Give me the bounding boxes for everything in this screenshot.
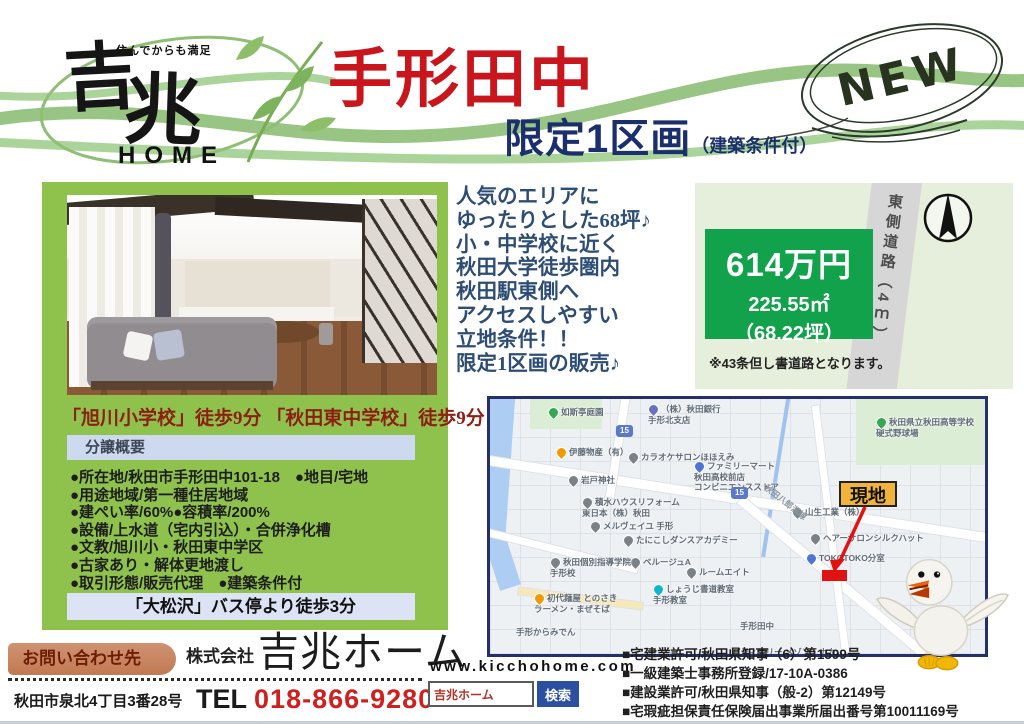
overview-item: ●建ぺい率/60%●容積率/200%	[70, 504, 440, 522]
map-pin-icon	[546, 405, 562, 421]
map-poi-text: 手形からみでん	[516, 627, 576, 637]
map-poi-text: ルームエイト	[699, 567, 750, 577]
price-box: 614万円 225.55㎡ （68.22坪）	[705, 229, 873, 339]
map-poi-text: 秋田県立秋田高等学校 硬式野球場	[876, 417, 974, 438]
map-poi-label: メルヴェイユ 手形	[590, 521, 673, 532]
map-poi-text: 如斯亭庭園	[561, 407, 604, 417]
photo-sofa-base-shape	[91, 381, 273, 390]
map-poi-text: 秋田個別指導学院 手形校	[550, 557, 631, 578]
map-pin-icon	[621, 533, 637, 549]
overview-list: ●所在地/秋田市手形田中101-18 ●地目/宅地●用途地域/第一種住居地域●建…	[70, 469, 440, 592]
logo-character-cho: 兆	[123, 71, 204, 152]
new-badge: NEW	[792, 6, 1012, 151]
map-pin-icon	[804, 551, 820, 567]
map-poi-label: 岩戸神社	[568, 475, 615, 486]
lead-line: アクセスしやすい	[456, 305, 704, 329]
tel-number: 018-866-9280	[254, 684, 434, 714]
lead-line: 小・中学校に近く	[456, 234, 704, 258]
company-prefix: 株式会社	[186, 642, 254, 673]
map-pin-icon	[626, 450, 642, 466]
company-name-row: 株式会社 吉兆ホーム	[186, 632, 467, 673]
map-poi-text: ベルージュA	[643, 557, 691, 567]
overview-item: ●用途地域/第一種住居地域	[70, 487, 440, 505]
map-poi-text: 初代麺屋 とのさき ラーメン・まぜそば	[534, 593, 617, 614]
photo-pillow-shape	[123, 331, 154, 362]
photo-pillow-shape	[153, 329, 185, 361]
map-poi-text: しょうじ書道教室 手形教室	[653, 584, 734, 605]
map-poi-text: たにこしダンスアカデミー	[636, 535, 738, 545]
map-road	[812, 406, 851, 654]
tel-label: TEL	[196, 684, 247, 714]
subtitle-main: 限定1区画	[504, 117, 691, 161]
flyer-page: 住んでからも満足 吉 兆 HOME 手形田中 限定1区画（建築条件付） NEW	[0, 0, 1024, 724]
map-poi-label: （株）秋田銀行 手形北支店	[648, 404, 721, 425]
map-pin-icon	[566, 473, 582, 489]
price-panel: 東側道路（4ｍ） 614万円 225.55㎡ （68.22坪） ※43条但し書道…	[695, 183, 1013, 389]
website-url: www.kicchohome.com	[430, 658, 636, 675]
photo-staircase-shape	[362, 199, 437, 363]
telephone-row: TEL 018-866-9280	[196, 684, 434, 715]
map-pin-icon	[684, 565, 700, 581]
kiccho-home-logo: 住んでからも満足 吉 兆 HOME	[58, 26, 258, 171]
duck-mascot	[872, 538, 1010, 676]
lead-line: ゆったりとした68坪♪	[456, 210, 704, 234]
map-poi-label: 如斯亭庭園	[548, 407, 604, 418]
map-poi-text: 手形田中	[740, 621, 774, 631]
bus-stop-line: 「大松沢」バス停より徒歩3分	[67, 593, 415, 620]
lead-line: 秋田大学徒歩圏内	[456, 257, 704, 281]
search-box: 検索	[428, 681, 579, 707]
subtitle: 限定1区画（建築条件付）	[504, 106, 817, 164]
photo-kitchen-shape	[185, 261, 330, 313]
lead-line: 立地条件！！	[456, 329, 704, 353]
site-marker-label: 現地	[839, 481, 897, 507]
map-poi-label: 手形からみでん	[516, 627, 576, 637]
compass-icon	[921, 191, 975, 245]
search-button[interactable]: 検索	[537, 681, 579, 707]
overview-item: ●設備/上水道（宅内引込）・合併浄化槽	[70, 522, 440, 540]
photo-chair-shape	[319, 323, 333, 345]
license-line: ■宅瑕疵担保責任保険届出事業所届出番号第10011169号	[622, 702, 959, 721]
interior-photo	[67, 195, 437, 395]
area-sqm: 225.55㎡	[705, 288, 873, 317]
map-poi-text: 伊藤物産（有）	[569, 447, 629, 457]
logo-home-text: HOME	[118, 142, 226, 170]
contact-badge: お問い合わせ先	[8, 643, 176, 675]
lead-line: 限定1区画の販売♪	[456, 353, 704, 377]
map-poi-text: 15	[620, 426, 629, 435]
search-input[interactable]	[428, 681, 534, 707]
map-poi-label: 秋田県立秋田高等学校 硬式野球場	[876, 417, 974, 438]
map-poi-label: 手形田中	[740, 621, 774, 631]
area-tsubo: （68.22坪）	[705, 317, 873, 346]
license-line: ■建設業許可/秋田県知事（般-2）第12149号	[622, 683, 959, 702]
overview-item: ●古家あり・解体更地渡し	[70, 557, 440, 575]
map-poi-label: たにこしダンスアカデミー	[623, 535, 738, 546]
map-pin-icon	[554, 445, 570, 461]
dotted-divider	[8, 678, 422, 681]
map-poi-label: ベルージュA	[630, 557, 691, 568]
map-pin-icon	[808, 531, 824, 547]
lead-line: 人気のエリアに	[456, 186, 704, 210]
price-amount: 614万円	[705, 238, 873, 286]
road-note: ※43条但し書道路となります。	[709, 353, 890, 372]
overview-item: ●所在地/秋田市手形田中101-18 ●地目/宅地	[70, 469, 440, 487]
overview-header: 分譲概要	[67, 435, 415, 460]
lead-line: 秋田駅東側へ	[456, 281, 704, 305]
map-poi-label: 15	[731, 487, 748, 499]
map-poi-label: 秋田個別指導学院 手形校	[550, 557, 631, 578]
map-poi-text: 岩戸神社	[581, 475, 615, 485]
map-poi-text: 15	[735, 488, 744, 497]
property-panel: 「旭川小学校」徒歩9分 「秋田東中学校」徒歩9分 分譲概要 ●所在地/秋田市手形…	[42, 182, 448, 630]
company-address: 秋田市泉北4丁目3番28号	[14, 690, 182, 711]
map-poi-label: しょうじ書道教室 手形教室	[653, 584, 734, 605]
school-distance-line: 「旭川小学校」徒歩9分 「秋田東中学校」徒歩9分	[62, 403, 442, 430]
map-poi-label: 15	[616, 425, 633, 437]
map-poi-text: 積水ハウスリフォーム 東日本（株）秋田	[582, 497, 680, 518]
map-poi-label: 積水ハウスリフォーム 東日本（株）秋田	[582, 497, 680, 518]
map-poi-text: メルヴェイユ 手形	[603, 521, 673, 531]
map-pin-icon	[588, 519, 604, 535]
map-river	[490, 399, 515, 548]
site-lot-rectangle	[822, 570, 847, 581]
map-poi-label: ルームエイト	[686, 567, 750, 578]
lead-copy: 人気のエリアにゆったりとした68坪♪小・中学校に近く秋田大学徒歩圏内秋田駅東側へ…	[456, 186, 704, 376]
overview-item: ●取引形態/販売代理 ●建築条件付	[70, 575, 440, 593]
map-poi-label: 伊藤物産（有）	[556, 447, 629, 458]
map-poi-label: 初代麺屋 とのさき ラーメン・まぜそば	[534, 593, 617, 614]
overview-item: ●文教/旭川小・秋田東中学区	[70, 539, 440, 557]
